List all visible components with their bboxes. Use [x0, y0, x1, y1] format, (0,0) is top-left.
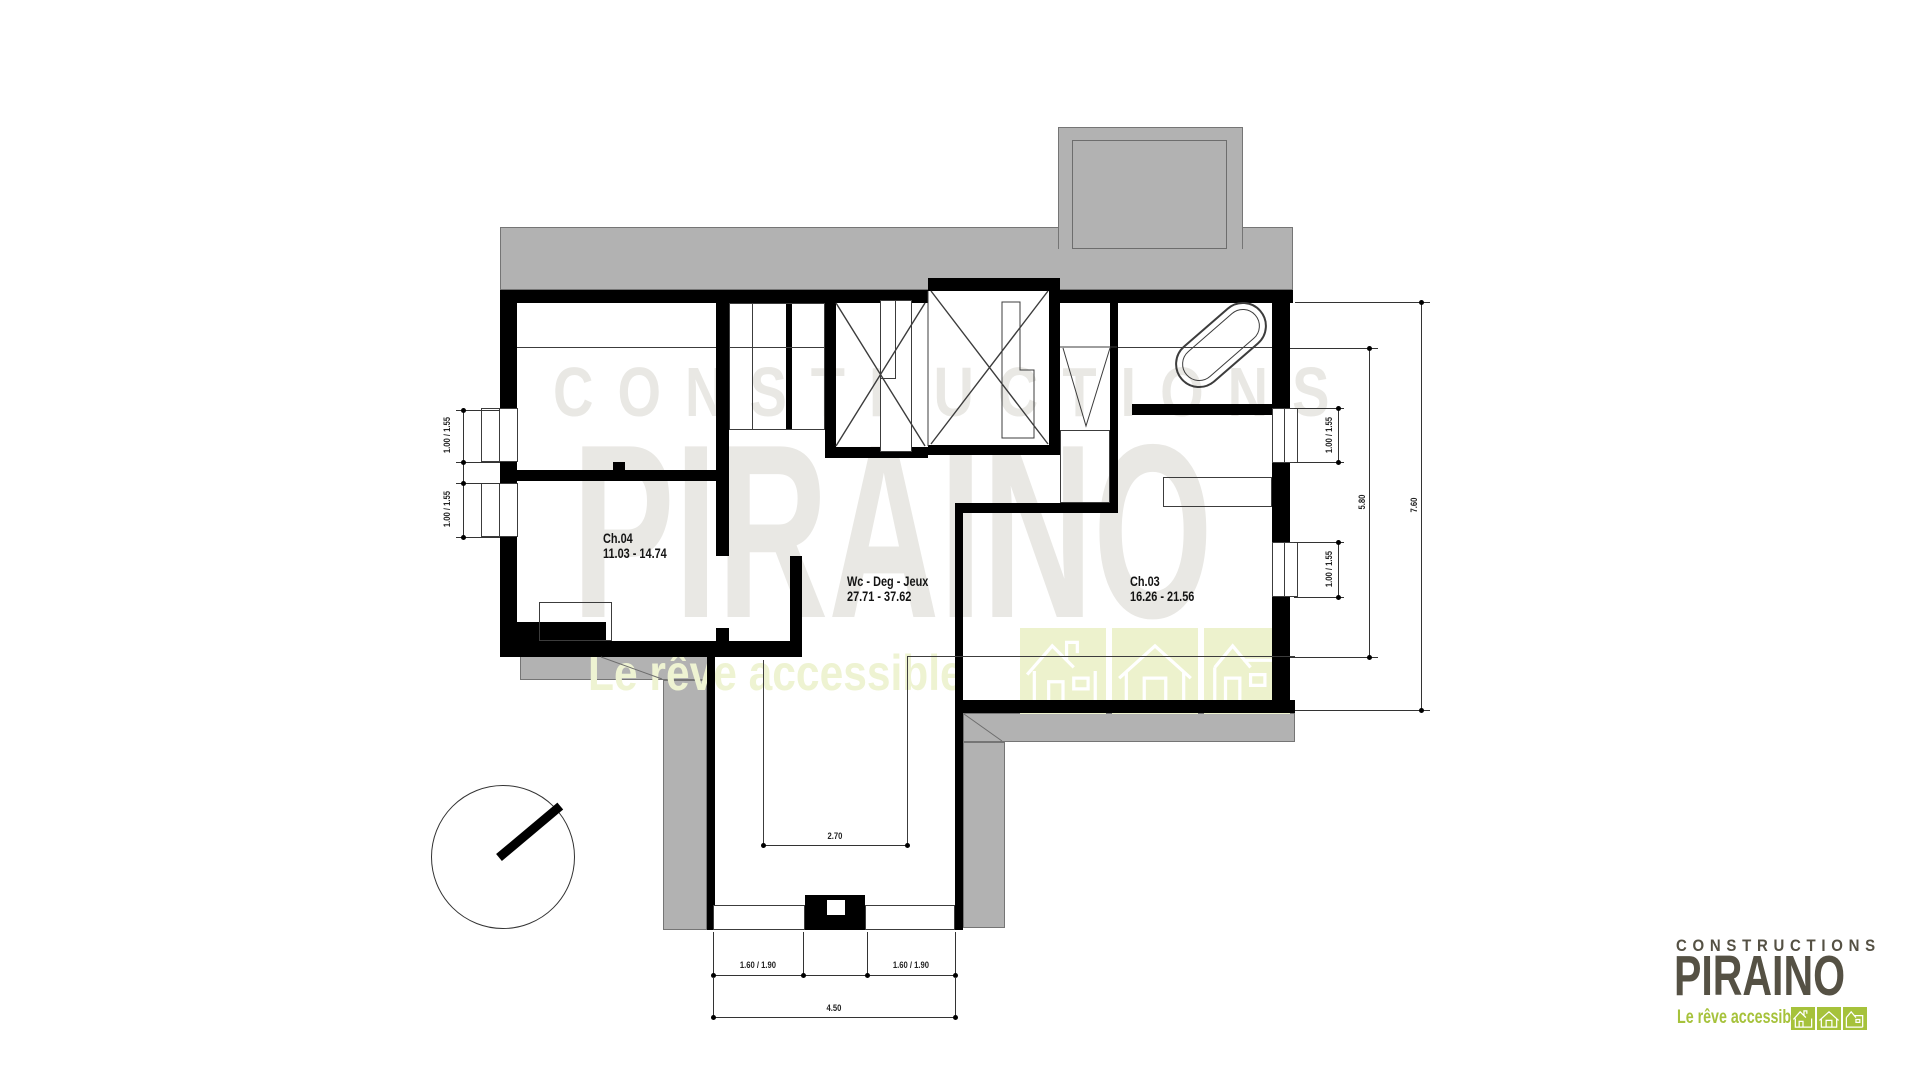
dimension-dot — [865, 973, 870, 978]
logo-house-icon — [1817, 1007, 1841, 1030]
linework-overlay — [0, 0, 1920, 1080]
dimension-extension — [1290, 348, 1378, 349]
dimension-dot — [1336, 595, 1341, 600]
logo-tagline: Le rêve accessible — [1677, 1007, 1803, 1029]
dimension-extension — [1295, 710, 1430, 711]
logo-piraino: PIRAINO — [1674, 948, 1845, 1005]
dimension-dot — [461, 481, 466, 486]
room-area: 27.71 - 37.62 — [847, 589, 928, 604]
room-name: Wc - Deg - Jeux — [847, 574, 928, 589]
dim-label-right-window-top: 1.00 / 1.55 — [1324, 408, 1334, 462]
dimension-line — [1421, 302, 1422, 710]
dimension-extension — [713, 932, 714, 975]
dim-label-right-inner: 5.80 — [1357, 475, 1367, 529]
dimension-dot — [1336, 540, 1341, 545]
dimension-dot — [953, 1015, 958, 1020]
dimension-line — [1338, 408, 1339, 462]
dimension-line — [763, 845, 907, 846]
dimension-dot — [461, 408, 466, 413]
dimension-dot — [1336, 406, 1341, 411]
dim-label-bottom-overall: 4.50 — [807, 1003, 861, 1013]
room-area: 16.26 - 21.56 — [1130, 589, 1194, 604]
dimension-dot — [711, 1015, 716, 1020]
dimension-extension — [803, 932, 804, 975]
room-label-ch03: Ch.03 16.26 - 21.56 — [1130, 574, 1194, 604]
dim-label-left-window-top: 1.00 / 1.55 — [442, 408, 452, 462]
dimension-line — [713, 1017, 955, 1018]
room-name: Ch.03 — [1130, 574, 1194, 589]
dim-label-left-window-bottom: 1.00 / 1.55 — [442, 482, 452, 536]
logo-house-icon — [1843, 1007, 1867, 1030]
dimension-line — [1338, 542, 1339, 597]
dimension-dot — [1336, 460, 1341, 465]
room-label-wc-deg-jeux: Wc - Deg - Jeux 27.71 - 37.62 — [847, 574, 928, 604]
room-area: 11.03 - 14.74 — [603, 546, 667, 561]
dimension-extension — [1290, 657, 1378, 658]
dimension-extension — [1295, 302, 1430, 303]
dim-label-bottom-window-left: 1.60 / 1.90 — [731, 960, 785, 970]
dimension-line — [1369, 348, 1370, 657]
dimension-dot — [905, 843, 910, 848]
dim-label-right-window-bottom: 1.00 / 1.55 — [1324, 542, 1334, 596]
dimension-extension — [713, 977, 714, 1017]
dimension-extension — [867, 932, 868, 975]
room-label-ch04: Ch.04 11.03 - 14.74 — [603, 531, 667, 561]
dimension-dot — [1419, 708, 1424, 713]
dimension-dot — [1367, 346, 1372, 351]
dimension-dot — [1367, 655, 1372, 660]
dim-label-right-overall: 7.60 — [1409, 478, 1419, 532]
dim-label-bottom-window-right: 1.60 / 1.90 — [884, 960, 938, 970]
dimension-extension — [955, 932, 956, 975]
dimension-dot — [801, 973, 806, 978]
floor-plan-sheet: CONSTRUCTIONS PIRAINO Le rêve accessible — [0, 0, 1920, 1080]
dimension-line — [713, 975, 955, 976]
dimension-dot — [761, 843, 766, 848]
dimension-dot — [461, 460, 466, 465]
dimension-dot — [1419, 300, 1424, 305]
logo-house-icon — [1791, 1007, 1815, 1030]
dimension-extension — [955, 977, 956, 1017]
dimension-dot — [461, 535, 466, 540]
dimension-line — [463, 410, 464, 537]
dim-label-opening: 2.70 — [808, 831, 862, 841]
room-name: Ch.04 — [603, 531, 667, 546]
